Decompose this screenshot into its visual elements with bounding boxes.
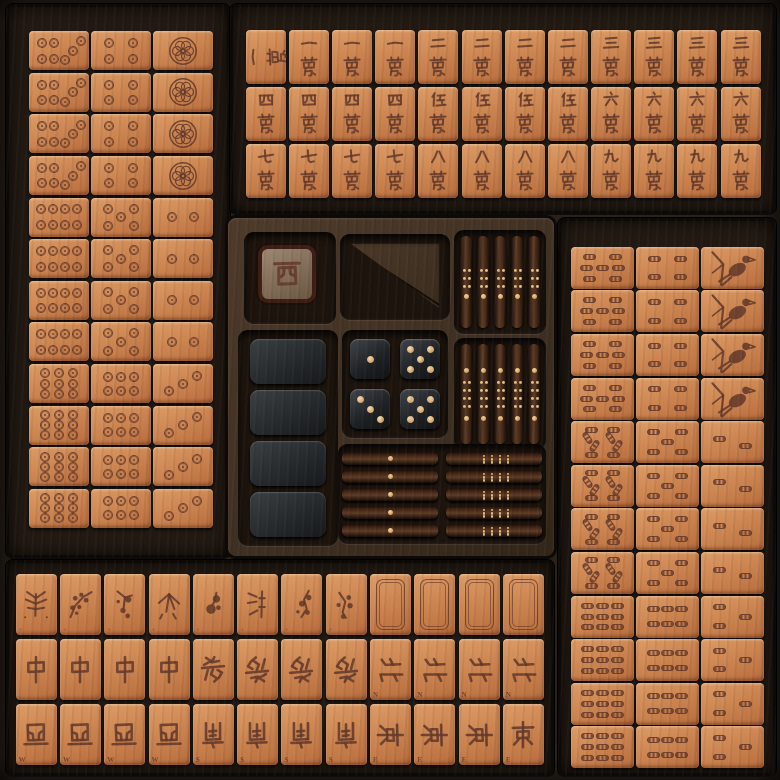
- tile-character-三萬[interactable]: [634, 30, 674, 84]
- tile-face: [289, 30, 329, 84]
- tile-circle-1[interactable]: [153, 73, 213, 112]
- tile-face: [153, 31, 213, 70]
- tile-circle-3[interactable]: [153, 489, 213, 528]
- tile-face: [571, 552, 634, 594]
- bamboo-segment: [648, 343, 661, 349]
- tile-flower-plum-branch[interactable]: +: [281, 574, 322, 635]
- stick-inlay-dot: [463, 389, 466, 392]
- tile-circle-1[interactable]: [153, 114, 213, 153]
- bamboo-segment: [647, 516, 660, 522]
- stick-inlay-dot: [498, 416, 503, 421]
- tile-bamboo-4[interactable]: [636, 334, 699, 376]
- tile-bamboo-8[interactable]: [571, 465, 634, 507]
- stick-inlay-dot: [480, 285, 483, 288]
- tile-character-六萬[interactable]: [677, 87, 717, 141]
- tile-bamboo-7[interactable]: [571, 247, 634, 289]
- tile-character-九萬[interactable]: [721, 144, 761, 198]
- die-pip: [407, 416, 414, 423]
- tile-bamboo-8[interactable]: [571, 421, 634, 463]
- tile-bamboo-2[interactable]: [701, 421, 764, 463]
- score-stick[interactable]: [446, 470, 542, 483]
- tile-bamboo-9[interactable]: [571, 639, 634, 681]
- tile-circle-5[interactable]: [91, 198, 151, 237]
- tile-character-七萬[interactable]: [246, 144, 286, 198]
- circle-pip: [103, 413, 113, 423]
- tile-face: [701, 683, 764, 725]
- tile-circle-6[interactable]: [91, 489, 151, 528]
- tile-character-伍萬[interactable]: [462, 87, 502, 141]
- tile-character-七萬[interactable]: [375, 144, 415, 198]
- tile-circle-2[interactable]: [153, 239, 213, 278]
- bamboo-segment: [661, 526, 674, 532]
- tile-face: [332, 87, 372, 141]
- die-pip: [407, 366, 414, 373]
- bird-icon: [706, 249, 760, 287]
- bamboo-segment: [581, 614, 594, 620]
- score-stick[interactable]: [477, 344, 489, 444]
- tile-white-dragon[interactable]: [414, 574, 455, 635]
- tile-circle-8[interactable]: [29, 198, 89, 237]
- tile-bamboo-3[interactable]: [701, 596, 764, 638]
- score-stick[interactable]: [528, 344, 540, 444]
- score-stick[interactable]: [342, 524, 438, 537]
- tile-face: [548, 87, 588, 141]
- tile-honor-發[interactable]: [237, 639, 278, 700]
- tile-character-二萬[interactable]: [462, 30, 502, 84]
- tile-flower-berry-branch[interactable]: +: [60, 574, 101, 635]
- glyph-萬: [685, 111, 709, 137]
- tile-bamboo-9[interactable]: [571, 596, 634, 638]
- stick-inlay-dot: [507, 527, 510, 530]
- score-stick[interactable]: [446, 524, 542, 537]
- tile-honor-西[interactable]: W: [149, 704, 190, 765]
- tile-honor-南[interactable]: S: [281, 704, 322, 765]
- tile-honor-北[interactable]: N: [503, 639, 544, 700]
- tile-bamboo-4[interactable]: [636, 290, 699, 332]
- tile-bamboo-6[interactable]: [636, 726, 699, 768]
- tile-character-八萬[interactable]: [462, 144, 502, 198]
- stick-inlay-dot: [536, 285, 539, 288]
- glyph-萬: [254, 111, 278, 137]
- score-stick[interactable]: [477, 236, 489, 328]
- tile-bamboo-8[interactable]: [571, 508, 634, 550]
- circle-pip: [103, 427, 113, 437]
- tile-character-八萬[interactable]: [548, 144, 588, 198]
- tile-face: [375, 87, 415, 141]
- tile-circle-4[interactable]: [91, 31, 151, 70]
- tile-character-六萬[interactable]: [721, 87, 761, 141]
- tile-circle-5[interactable]: [91, 239, 151, 278]
- tile-face: [634, 144, 674, 198]
- spare-blank-tile[interactable]: [250, 441, 326, 486]
- circle-pip: [129, 287, 139, 297]
- tile-face: [153, 156, 213, 195]
- circle-pip: [54, 410, 64, 420]
- circle-pip: [167, 254, 177, 264]
- tile-white-dragon[interactable]: [370, 574, 411, 635]
- tile-character-四萬[interactable]: [332, 87, 372, 141]
- die-pip: [427, 416, 434, 423]
- tile-bamboo-6[interactable]: [636, 683, 699, 725]
- circle-pip: [48, 262, 58, 272]
- glyph-八: [427, 147, 449, 167]
- tile-flower-hanging-buds[interactable]: +: [104, 574, 145, 635]
- circle-pip: [60, 262, 70, 272]
- tile-honor-西[interactable]: W: [104, 704, 145, 765]
- stick-inlay-dot: [481, 368, 486, 373]
- tile-circle-7[interactable]: [29, 73, 89, 112]
- tile-face: [701, 378, 764, 420]
- tile-character-一萬[interactable]: [246, 30, 286, 84]
- tile-face: [281, 639, 322, 700]
- bamboo-segment: [674, 343, 687, 349]
- tile-bamboo-3[interactable]: [701, 639, 764, 681]
- glyph-四: [341, 90, 363, 110]
- score-stick[interactable]: [528, 236, 540, 328]
- bamboo-segment: [611, 624, 624, 630]
- tile-bamboo-2[interactable]: [701, 508, 764, 550]
- glyph-萬: [599, 54, 623, 80]
- circle-pip: [60, 345, 70, 355]
- circle-pip: [49, 137, 59, 147]
- glyph-二: [427, 33, 449, 53]
- tile-character-一萬[interactable]: [375, 30, 415, 84]
- tile-circle-4[interactable]: [91, 114, 151, 153]
- glyph-萬: [556, 54, 580, 80]
- tile-honor-西[interactable]: W: [60, 704, 101, 765]
- one-circle-rosette-icon: [168, 77, 198, 107]
- bamboo-segment: [611, 657, 624, 663]
- tile-circle-3[interactable]: [153, 364, 213, 403]
- stick-inlay-dot: [463, 397, 466, 400]
- tile-bamboo-4[interactable]: [636, 378, 699, 420]
- tile-white-dragon[interactable]: [503, 574, 544, 635]
- tile-honor-南[interactable]: S: [193, 704, 234, 765]
- tile-circle-9[interactable]: [29, 364, 89, 403]
- tile-honor-中[interactable]: [16, 639, 57, 700]
- score-stick[interactable]: [460, 236, 472, 328]
- glyph-三: [643, 33, 665, 53]
- circle-pip: [178, 462, 188, 472]
- glyph-萬: [340, 111, 364, 137]
- die-showing-5[interactable]: [400, 339, 440, 379]
- stick-inlay-dot: [531, 405, 534, 408]
- circle-pip: [36, 246, 46, 256]
- tile-face: [60, 639, 101, 700]
- glyph-八: [514, 147, 536, 167]
- tile-character-六萬[interactable]: [591, 87, 631, 141]
- tile-character-三萬[interactable]: [677, 30, 717, 84]
- score-stick[interactable]: [446, 506, 542, 519]
- tile-character-七萬[interactable]: [289, 144, 329, 198]
- tile-character-三萬[interactable]: [591, 30, 631, 84]
- tile-character-二萬[interactable]: [505, 30, 545, 84]
- tile-bamboo-5[interactable]: [636, 552, 699, 594]
- stick-inlay-dot: [485, 277, 488, 280]
- tile-honor-東[interactable]: E: [503, 704, 544, 765]
- flower-corner-mark: +: [152, 626, 156, 634]
- one-circle-rosette-icon: [168, 36, 198, 66]
- wind-letter-E: E: [417, 756, 422, 764]
- tile-face: [636, 726, 699, 768]
- tile-circle-8[interactable]: [29, 281, 89, 320]
- tile-bamboo-6[interactable]: [636, 639, 699, 681]
- bamboo-segment: [596, 352, 609, 358]
- die-showing-1[interactable]: [350, 339, 390, 379]
- tile-circle-2[interactable]: [153, 281, 213, 320]
- tile-character-六萬[interactable]: [634, 87, 674, 141]
- tile-bamboo-3[interactable]: [701, 726, 764, 768]
- bamboo-segment: [713, 567, 726, 573]
- stick-inlay-dot: [468, 277, 471, 280]
- tile-bamboo-1[interactable]: [701, 334, 764, 376]
- stick-inlay-dot: [480, 389, 483, 392]
- tile-face: [153, 239, 213, 278]
- score-stick[interactable]: [342, 488, 438, 501]
- glyph-東: [458, 719, 500, 751]
- wind-letter-E: E: [462, 756, 467, 764]
- bamboo-segment: [661, 665, 674, 671]
- tile-character-二萬[interactable]: [418, 30, 458, 84]
- tile-bamboo-1[interactable]: [701, 247, 764, 289]
- tile-honor-發[interactable]: [281, 639, 322, 700]
- circle-pip: [192, 496, 202, 506]
- glyph-六: [600, 90, 622, 110]
- tile-bamboo-5[interactable]: [636, 465, 699, 507]
- tile-circle-6[interactable]: [91, 447, 151, 486]
- tile-honor-中[interactable]: [149, 639, 190, 700]
- tile-character-八萬[interactable]: [505, 144, 545, 198]
- tile-circle-4[interactable]: [91, 156, 151, 195]
- tile-character-九萬[interactable]: [591, 144, 631, 198]
- circle-pip: [68, 452, 78, 462]
- tile-character-一萬[interactable]: [332, 30, 372, 84]
- stick-inlay-dot: [515, 294, 520, 299]
- glyph-西: [153, 714, 185, 756]
- tile-face: [246, 144, 286, 198]
- tile-circle-9[interactable]: [29, 489, 89, 528]
- wind-letter-S: S: [329, 756, 333, 764]
- glyph-西: [64, 714, 96, 756]
- glyph-南: [286, 714, 318, 756]
- dealer-marker[interactable]: [262, 249, 312, 299]
- tile-flower-fern[interactable]: +: [16, 574, 57, 635]
- score-stick[interactable]: [511, 344, 523, 444]
- stick-inlay-dot: [507, 458, 510, 461]
- tile-circle-1[interactable]: [153, 31, 213, 70]
- tile-circle-2[interactable]: [153, 198, 213, 237]
- tile-honor-南[interactable]: S: [237, 704, 278, 765]
- score-stick[interactable]: [494, 236, 506, 328]
- tile-bamboo-1[interactable]: [701, 378, 764, 420]
- tile-circle-7[interactable]: [29, 31, 89, 70]
- tile-circle-1[interactable]: [153, 156, 213, 195]
- tile-circle-2[interactable]: [153, 322, 213, 361]
- tile-circle-9[interactable]: [29, 406, 89, 445]
- score-stick[interactable]: [342, 452, 438, 465]
- bamboo-segment: [596, 744, 609, 750]
- stick-inlay-dot: [531, 277, 534, 280]
- tile-character-四萬[interactable]: [375, 87, 415, 141]
- circle-pip: [103, 287, 113, 297]
- tile-bamboo-2[interactable]: [701, 552, 764, 594]
- tile-face: [91, 31, 151, 70]
- tile-bamboo-1[interactable]: [701, 290, 764, 332]
- spare-blank-tile[interactable]: [250, 390, 326, 435]
- score-stick[interactable]: [446, 488, 542, 501]
- score-stick[interactable]: [460, 344, 472, 444]
- tile-bamboo-9[interactable]: [571, 726, 634, 768]
- bamboo-segment: [647, 650, 660, 656]
- tile-character-伍萬[interactable]: [418, 87, 458, 141]
- bamboo-segment: [647, 580, 660, 586]
- stick-inlay-dot: [499, 509, 502, 512]
- glyph-中: [109, 649, 141, 691]
- spare-blank-tile[interactable]: [250, 492, 326, 537]
- stick-inlay-dot: [483, 458, 486, 461]
- tile-bamboo-6[interactable]: [636, 596, 699, 638]
- tile-circle-6[interactable]: [91, 364, 151, 403]
- tile-face: [701, 639, 764, 681]
- tile-bamboo-3[interactable]: [701, 683, 764, 725]
- tile-flower-peony[interactable]: +: [193, 574, 234, 635]
- wind-letter-W: W: [152, 756, 159, 764]
- tile-circle-8[interactable]: [29, 322, 89, 361]
- stick-inlay-dot: [464, 416, 469, 421]
- die-showing-3[interactable]: [350, 389, 390, 429]
- bamboo-segment: [675, 621, 688, 627]
- tile-honor-西[interactable]: W: [16, 704, 57, 765]
- tile-circle-8[interactable]: [29, 239, 89, 278]
- circle-pip: [60, 246, 70, 256]
- tile-flower-blossom-sprig[interactable]: +: [326, 574, 367, 635]
- tile-circle-3[interactable]: [153, 447, 213, 486]
- bamboo-segment: [675, 606, 688, 612]
- tile-bamboo-7[interactable]: [571, 290, 634, 332]
- stick-inlay-dot: [499, 494, 502, 497]
- flower-fern-icon: [19, 582, 53, 628]
- stick-inlay-dot: [515, 368, 520, 373]
- bamboo-segment: [611, 744, 624, 750]
- circle-pip: [60, 220, 70, 230]
- spare-blank-tile[interactable]: [250, 339, 326, 384]
- tile-character-伍萬[interactable]: [548, 87, 588, 141]
- stick-inlay-dot: [468, 269, 471, 272]
- stick-inlay-dot: [480, 381, 483, 384]
- tile-character-二萬[interactable]: [548, 30, 588, 84]
- die-showing-5[interactable]: [400, 389, 440, 429]
- top-tray-character-tiles: [230, 4, 776, 214]
- tile-bamboo-4[interactable]: [636, 247, 699, 289]
- tile-character-一萬[interactable]: [289, 30, 329, 84]
- tile-circle-4[interactable]: [91, 73, 151, 112]
- circle-pip: [104, 54, 114, 64]
- die-pip: [357, 396, 364, 403]
- tile-bamboo-7[interactable]: [571, 334, 634, 376]
- tile-bamboo-5[interactable]: [636, 508, 699, 550]
- white-dragon-frame: [509, 579, 538, 630]
- tile-honor-中[interactable]: [60, 639, 101, 700]
- circle-pip: [40, 389, 50, 399]
- bamboo-segment: [647, 737, 660, 743]
- bamboo-segment: [647, 708, 660, 714]
- stick-inlay-dot: [491, 473, 494, 476]
- tile-circle-5[interactable]: [91, 322, 151, 361]
- circle-pip: [104, 137, 114, 147]
- score-stick[interactable]: [342, 470, 438, 483]
- circle-pip: [54, 462, 64, 472]
- bamboo-segment: [675, 693, 688, 699]
- tile-face: [239, 37, 293, 77]
- tile-character-七萬[interactable]: [332, 144, 372, 198]
- bamboo-segment: [647, 665, 660, 671]
- score-stick[interactable]: [446, 452, 542, 465]
- tile-bamboo-5[interactable]: [636, 421, 699, 463]
- mahjong-box: ++++++++NNNNWWWWSSSSEEEE: [0, 0, 780, 780]
- bamboo-segment: [583, 319, 596, 325]
- tile-circle-7[interactable]: [29, 156, 89, 195]
- tile-bamboo-2[interactable]: [701, 465, 764, 507]
- tile-face: [636, 683, 699, 725]
- stick-inlay-dot: [507, 455, 510, 458]
- bamboo-segment: [580, 396, 593, 402]
- score-stick[interactable]: [494, 344, 506, 444]
- tile-character-四萬[interactable]: [246, 87, 286, 141]
- stick-inlay-dot: [483, 461, 486, 464]
- tile-character-九萬[interactable]: [677, 144, 717, 198]
- tile-character-伍萬[interactable]: [505, 87, 545, 141]
- tile-circle-3[interactable]: [153, 406, 213, 445]
- score-stick[interactable]: [511, 236, 523, 328]
- glyph-萬: [263, 45, 289, 69]
- tile-bamboo-9[interactable]: [571, 683, 634, 725]
- tile-face: [721, 30, 761, 84]
- tile-bamboo-8[interactable]: [571, 552, 634, 594]
- bamboo-segment: [611, 603, 624, 609]
- tile-honor-中[interactable]: [104, 639, 145, 700]
- bamboo-segment: [661, 570, 674, 576]
- tile-character-八萬[interactable]: [418, 144, 458, 198]
- tile-bamboo-7[interactable]: [571, 378, 634, 420]
- stick-inlay-dot: [483, 473, 486, 476]
- stick-inlay-dot: [514, 405, 517, 408]
- tile-character-三萬[interactable]: [721, 30, 761, 84]
- tile-flower-bamboo-stalk[interactable]: +: [237, 574, 278, 635]
- tile-honor-發[interactable]: [193, 639, 234, 700]
- bamboo-segment: [612, 308, 625, 314]
- tile-character-九萬[interactable]: [634, 144, 674, 198]
- tile-white-dragon[interactable]: [459, 574, 500, 635]
- bamboo-segment: [713, 479, 726, 485]
- tile-circle-7[interactable]: [29, 114, 89, 153]
- circle-pip: [72, 288, 82, 298]
- score-stick[interactable]: [342, 506, 438, 519]
- tile-circle-9[interactable]: [29, 447, 89, 486]
- stick-inlay-dot: [491, 530, 494, 533]
- tile-circle-5[interactable]: [91, 281, 151, 320]
- tile-circle-6[interactable]: [91, 406, 151, 445]
- tile-face: [29, 239, 89, 278]
- tile-face: [701, 421, 764, 463]
- stick-inlay-dot: [463, 285, 466, 288]
- tile-honor-東[interactable]: E: [459, 704, 500, 765]
- glyph-中: [153, 649, 185, 691]
- tile-flower-bamboo-leaves[interactable]: +: [149, 574, 190, 635]
- bamboo-segment: [596, 308, 609, 314]
- tile-character-四萬[interactable]: [289, 87, 329, 141]
- glyph-發: [197, 649, 229, 691]
- die-pip: [427, 366, 434, 373]
